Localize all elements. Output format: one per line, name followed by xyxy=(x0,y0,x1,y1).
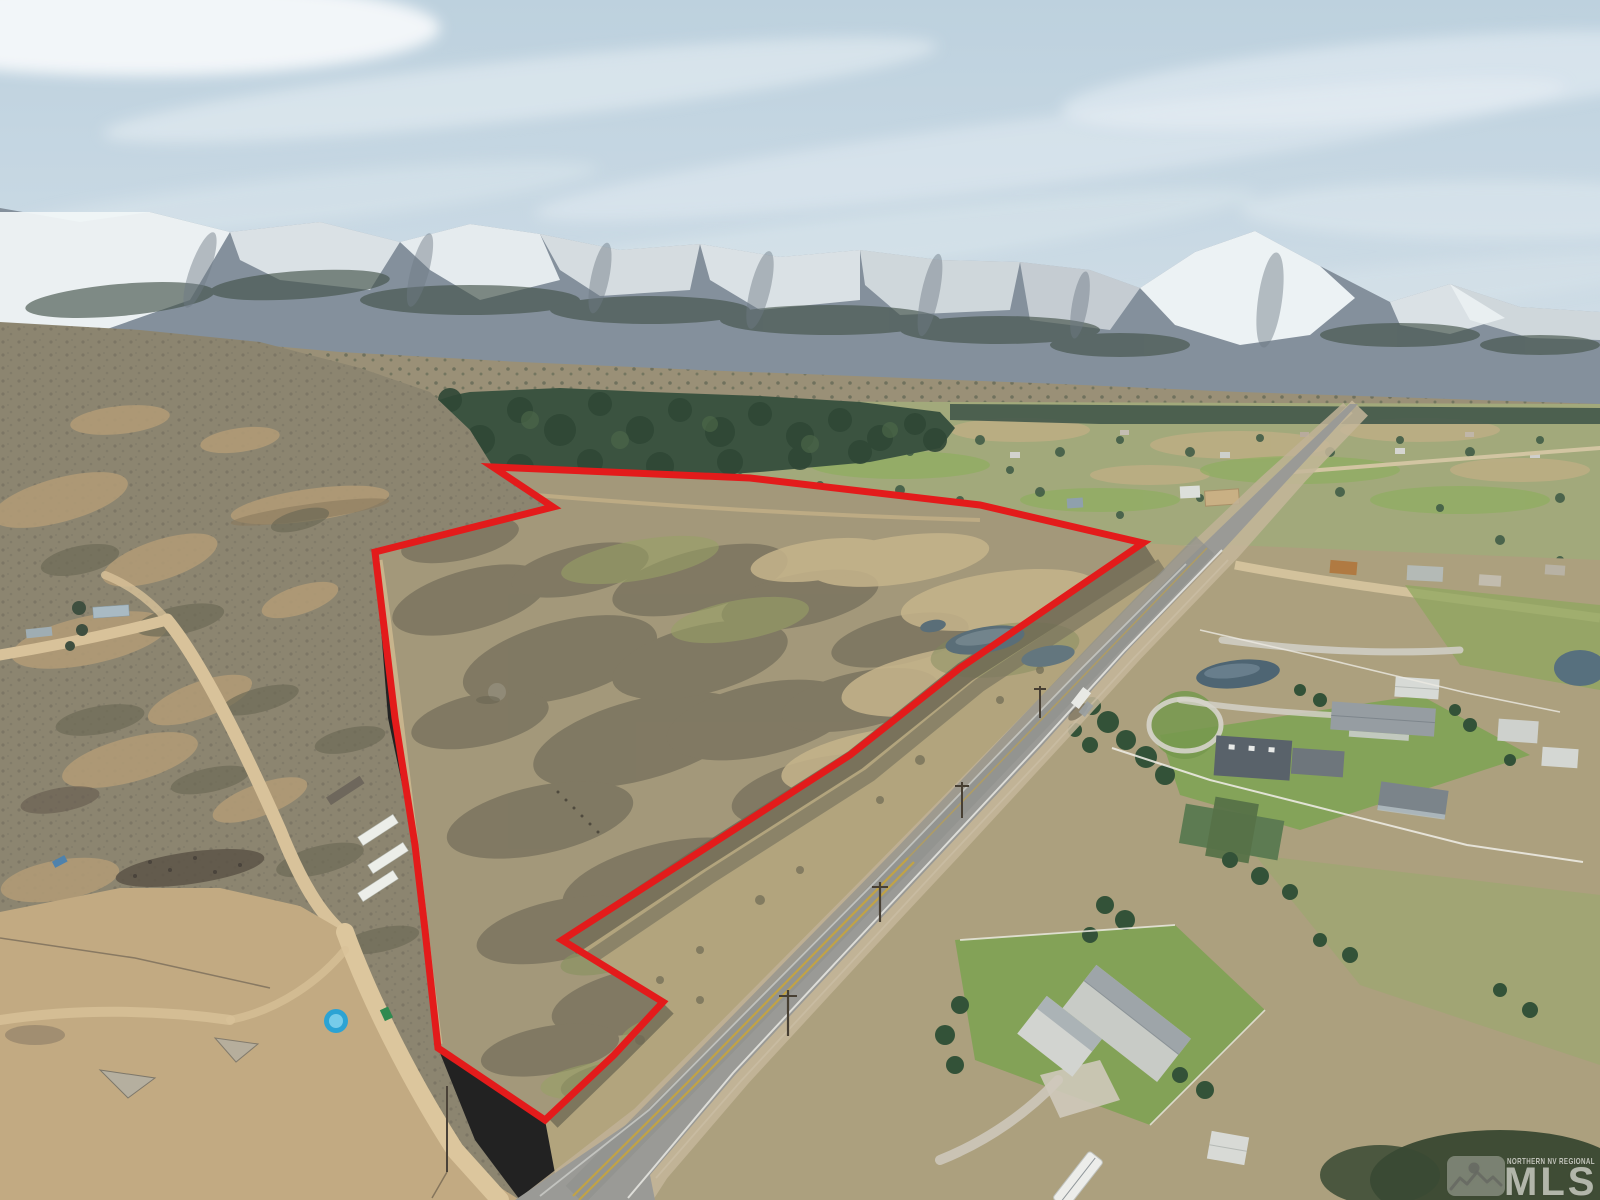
mls-watermark: NORTHERN NV REGIONAL MLS xyxy=(1447,1156,1597,1200)
mls-logo-icon xyxy=(1447,1156,1505,1196)
watermark-brand: MLS xyxy=(1504,1160,1597,1200)
aerial-photo-canvas: NORTHERN NV REGIONAL MLS xyxy=(0,0,1600,1200)
aerial-photo: NORTHERN NV REGIONAL MLS xyxy=(0,0,1600,1200)
